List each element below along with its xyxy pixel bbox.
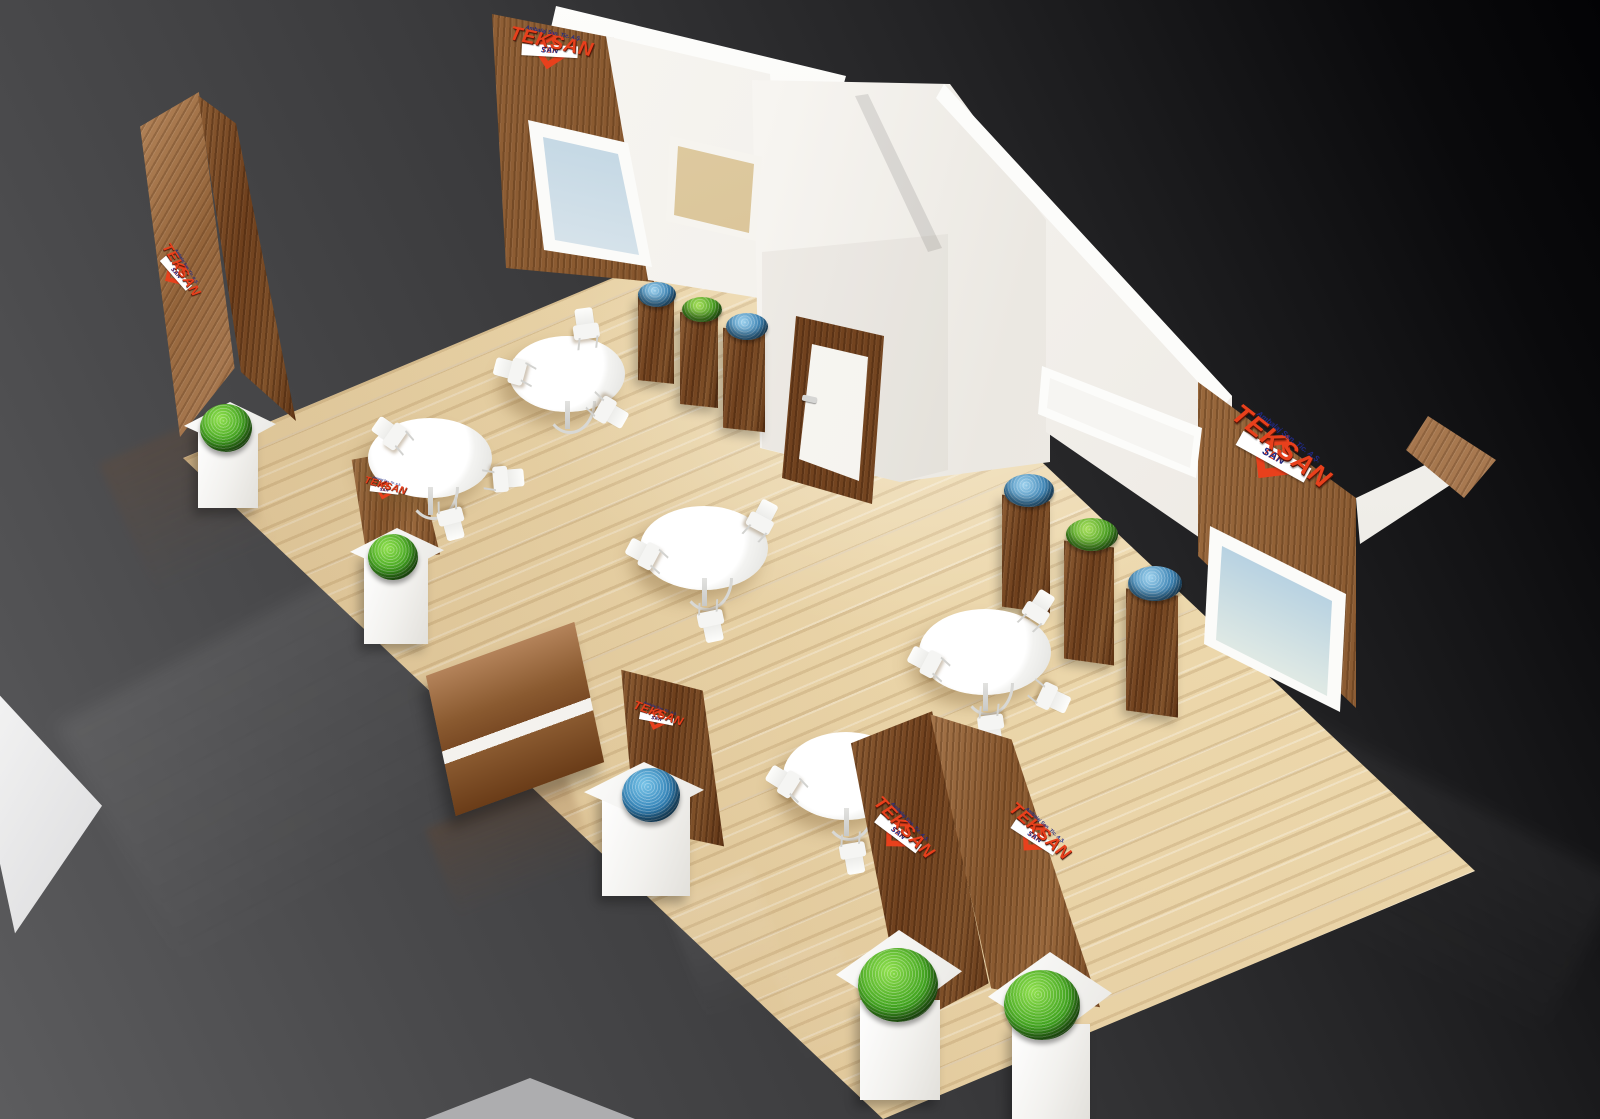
decor-bowl-blue — [726, 313, 768, 340]
decor-ball-green — [1004, 970, 1080, 1040]
decor-bowl-blue — [1004, 474, 1054, 507]
decor-ball-blue — [622, 768, 680, 822]
booth-3d-render: TEKSAN TEKSAN Ambalaj San. Tic. A.Ş. TEK… — [0, 0, 1600, 1119]
decor-bowl-blue — [638, 282, 676, 307]
decor-ball-green — [858, 948, 938, 1022]
wood-pedestal — [680, 312, 718, 408]
wood-pedestal — [1126, 588, 1178, 717]
decor-bowl-blue — [1128, 566, 1182, 601]
wood-pedestal — [1064, 540, 1114, 665]
chair — [481, 464, 525, 494]
decor-ball-green — [368, 534, 418, 580]
decor-ball-green — [200, 404, 252, 452]
wood-pedestal — [638, 296, 674, 384]
wood-pedestal — [723, 328, 765, 432]
decor-bowl-green — [682, 297, 722, 322]
decor-bowl-green — [1066, 518, 1118, 551]
